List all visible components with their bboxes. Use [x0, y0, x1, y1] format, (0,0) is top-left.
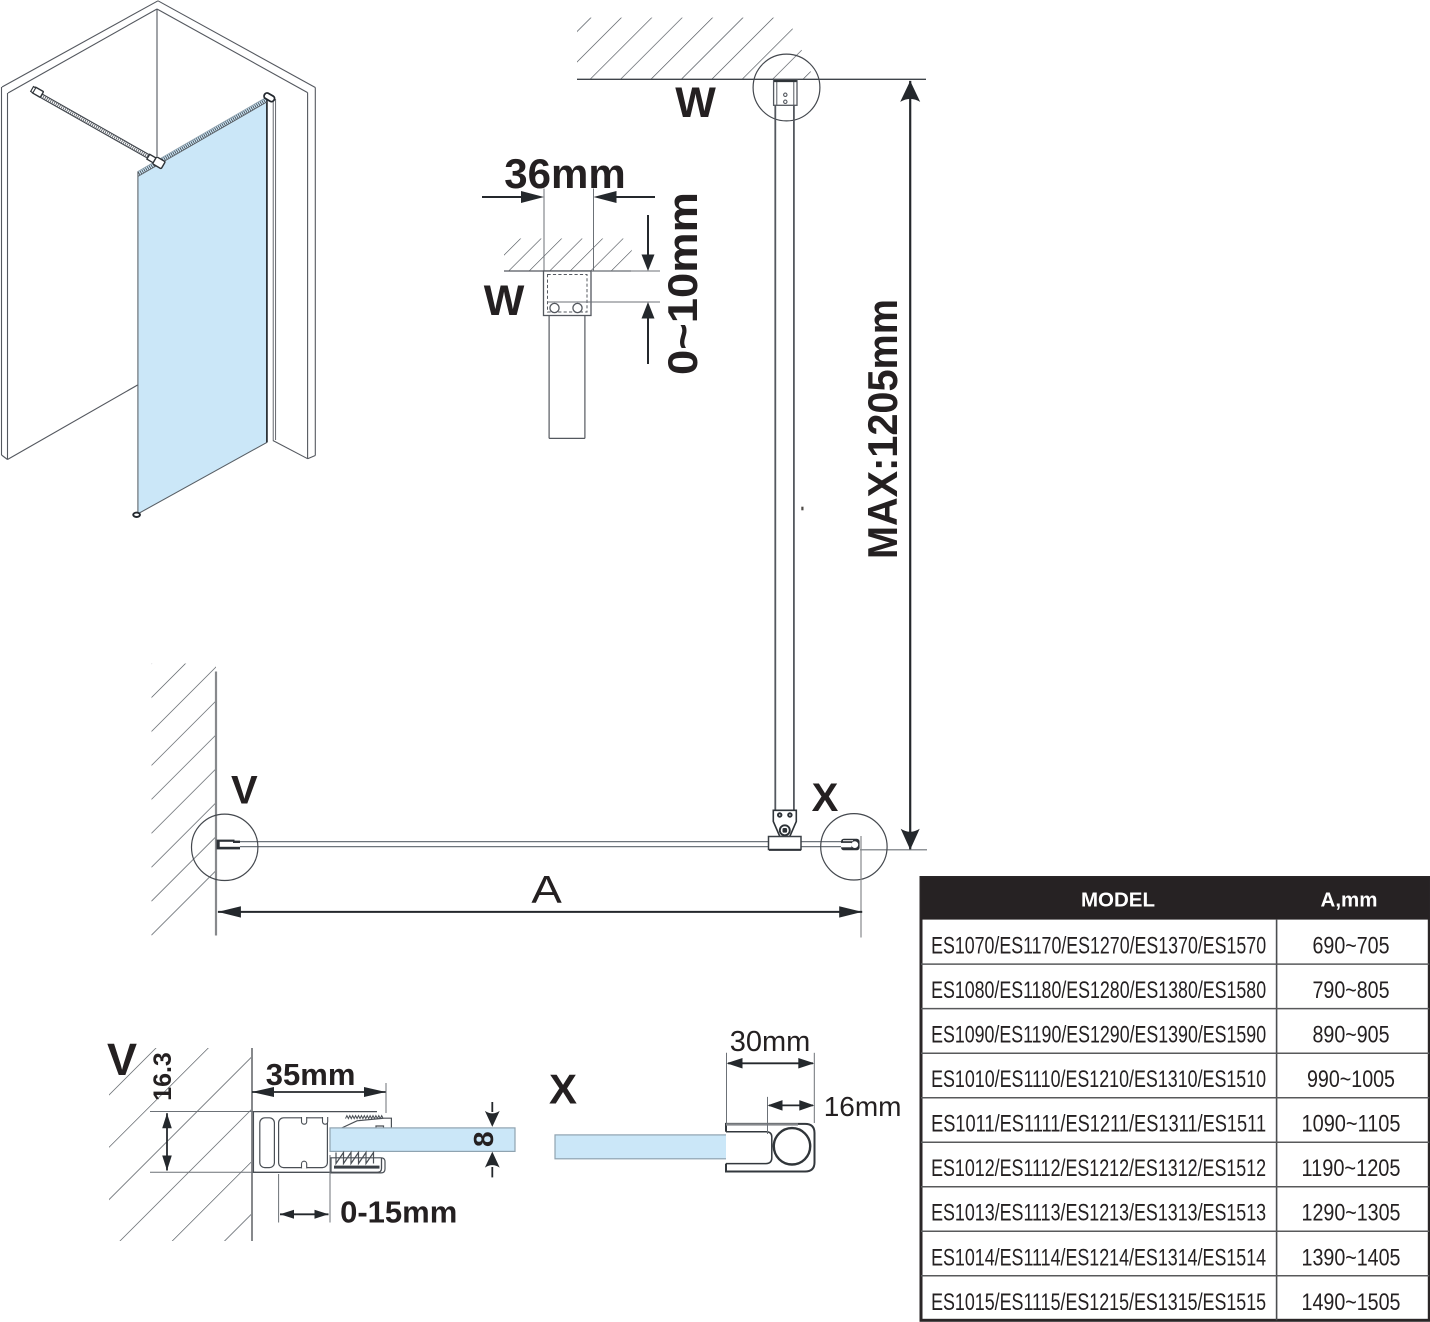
svg-text:16mm: 16mm: [824, 1091, 902, 1122]
svg-text:A: A: [531, 868, 562, 911]
svg-text:1390~1405: 1390~1405: [1302, 1244, 1401, 1271]
svg-text:990~1005: 990~1005: [1307, 1066, 1395, 1093]
svg-text:890~905: 890~905: [1313, 1022, 1390, 1049]
svg-text:W: W: [675, 79, 716, 127]
svg-text:X: X: [549, 1066, 577, 1113]
svg-text:ES1090/ES1190/ES1290/ES1390/ES: ES1090/ES1190/ES1290/ES1390/ES1590: [931, 1022, 1266, 1049]
svg-text:690~705: 690~705: [1313, 933, 1390, 960]
svg-text:ES1014/ES1114/ES1214/ES1314/ES: ES1014/ES1114/ES1214/ES1314/ES1514: [931, 1244, 1266, 1271]
svg-text:30mm: 30mm: [730, 1026, 811, 1058]
svg-text:W: W: [484, 277, 525, 325]
svg-text:ES1070/ES1170/ES1270/ES1370/ES: ES1070/ES1170/ES1270/ES1370/ES1570: [931, 933, 1266, 960]
svg-text:X: X: [812, 776, 839, 820]
svg-text:0-15mm: 0-15mm: [340, 1195, 457, 1230]
svg-text:36mm: 36mm: [504, 150, 625, 197]
svg-text:1290~1305: 1290~1305: [1302, 1200, 1401, 1227]
svg-text:ES1013/ES1113/ES1213/ES1313/ES: ES1013/ES1113/ES1213/ES1313/ES1513: [931, 1200, 1266, 1227]
svg-text:16.3: 16.3: [149, 1052, 177, 1101]
svg-text:V: V: [231, 769, 258, 813]
svg-text:1090~1105: 1090~1105: [1302, 1111, 1401, 1138]
svg-text:MODEL: MODEL: [1081, 888, 1155, 911]
svg-text:ES1012/ES1112/ES1212/ES1312/ES: ES1012/ES1112/ES1212/ES1312/ES1512: [931, 1155, 1266, 1182]
svg-text:35mm: 35mm: [266, 1057, 356, 1092]
svg-text:ES1010/ES1110/ES1210/ES1310/ES: ES1010/ES1110/ES1210/ES1310/ES1510: [931, 1066, 1266, 1093]
svg-text:MAX:1205mm: MAX:1205mm: [859, 299, 906, 559]
svg-text:ES1080/ES1180/ES1280/ES1380/ES: ES1080/ES1180/ES1280/ES1380/ES1580: [931, 977, 1266, 1004]
svg-text:1190~1205: 1190~1205: [1302, 1155, 1401, 1182]
svg-text:1490~1505: 1490~1505: [1302, 1289, 1401, 1316]
svg-text:ES1011/ES1111/ES1211/ES1311/ES: ES1011/ES1111/ES1211/ES1311/ES1511: [931, 1111, 1266, 1138]
svg-text:8: 8: [468, 1131, 499, 1147]
svg-text:0~10mm: 0~10mm: [659, 192, 706, 375]
svg-text:790~805: 790~805: [1313, 977, 1390, 1004]
svg-text:ES1015/ES1115/ES1215/ES1315/ES: ES1015/ES1115/ES1215/ES1315/ES1515: [931, 1289, 1266, 1316]
svg-text:A,mm: A,mm: [1321, 888, 1378, 911]
